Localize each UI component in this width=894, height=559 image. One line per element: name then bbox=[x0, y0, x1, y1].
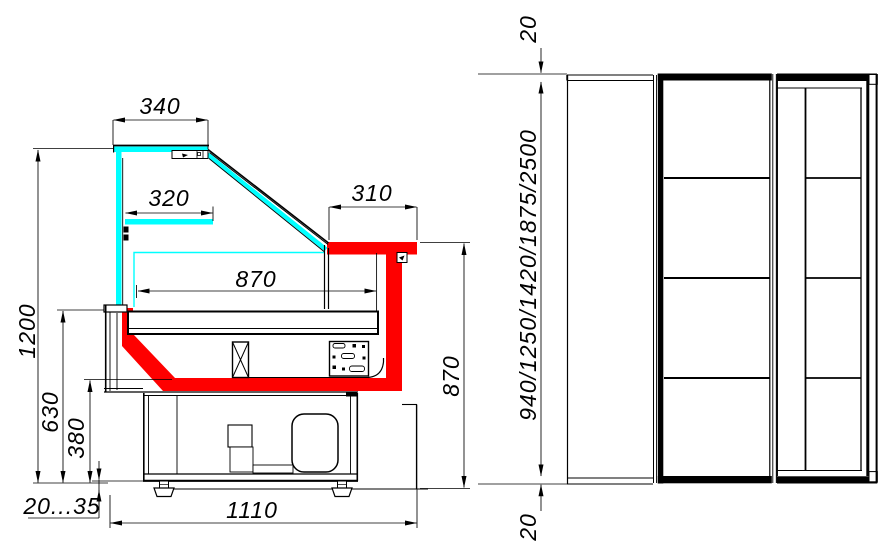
dim-case-lengths: 940/1250/1420/1875/2500 bbox=[515, 129, 541, 421]
dim-leg-adjust: 20...35 bbox=[22, 493, 100, 519]
dim-worktop-width: 310 bbox=[351, 180, 392, 206]
dim-end-panel-top: 20 bbox=[515, 15, 541, 44]
compressor bbox=[292, 414, 338, 472]
plan-glass-joints-right bbox=[806, 178, 862, 378]
dim-overall-depth: 1110 bbox=[226, 497, 278, 523]
slope-glass bbox=[208, 155, 327, 250]
dim-worktop-height: 870 bbox=[438, 355, 464, 396]
display-deck bbox=[128, 312, 378, 335]
dim-canopy-top-width: 340 bbox=[139, 93, 180, 119]
dim-shelf-width: 320 bbox=[148, 185, 189, 211]
control-panel bbox=[330, 342, 369, 377]
machinery-compartment bbox=[143, 393, 358, 481]
technical-drawing-canvas: 340 320 310 870 1110 20...35 1200 630 38… bbox=[0, 0, 894, 559]
condenser-box bbox=[228, 425, 252, 447]
glass-elements bbox=[114, 147, 213, 307]
dim-display-deck-width: 870 bbox=[235, 266, 276, 292]
dim-overall-height: 1200 bbox=[14, 303, 40, 358]
front-glass bbox=[116, 152, 122, 306]
plan-glass-joints-middle bbox=[664, 178, 770, 378]
plan-view: 20 940/1250/1420/1875/2500 20 bbox=[478, 15, 877, 542]
side-view: 340 320 310 870 1110 20...35 1200 630 38… bbox=[14, 93, 470, 528]
back-partition bbox=[325, 245, 329, 309]
dim-end-panel-bottom: 20 bbox=[515, 513, 541, 542]
display-case-drawing: 340 320 310 870 1110 20...35 1200 630 38… bbox=[0, 0, 894, 559]
dim-front-panel-height: 630 bbox=[37, 391, 63, 432]
shelf-glass bbox=[125, 219, 213, 225]
cross-brace bbox=[233, 342, 249, 378]
display-area-glass-outline bbox=[134, 253, 325, 308]
plan-structure bbox=[567, 74, 877, 485]
detail-marker bbox=[397, 253, 407, 263]
foot-right bbox=[332, 481, 352, 497]
dim-tub-bottom-height: 380 bbox=[63, 417, 89, 458]
foot-left bbox=[154, 481, 174, 497]
